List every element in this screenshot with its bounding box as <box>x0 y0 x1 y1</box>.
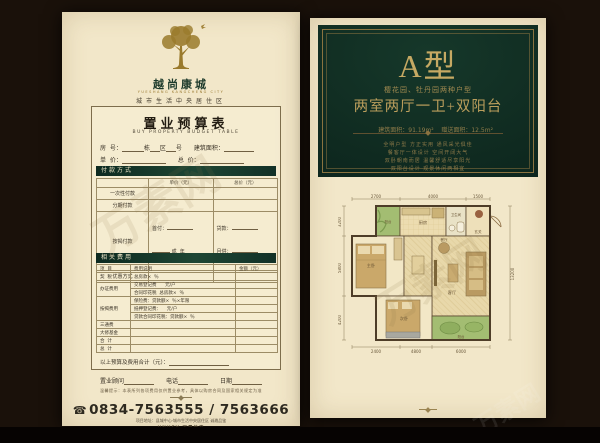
brand-tagline: 城市生活中央居住区 <box>62 96 300 105</box>
svg-text:2700: 2700 <box>371 194 382 199</box>
mortgage-fee-desc1: 保险费：贷款额× ％×年限 <box>131 297 236 305</box>
table-row: 办证费用 交易登记费 元/户 <box>97 281 278 289</box>
budget-form-flyer: 越尚康城 YUESHANG KANGCHENG CITY 城市生活中央居住区 置… <box>62 12 300 426</box>
empty-cell <box>97 179 149 188</box>
table-row: 总 计 <box>97 345 278 353</box>
svg-text:13200: 13200 <box>510 267 515 280</box>
svg-text:3200: 3200 <box>338 216 342 227</box>
total-price-label: 总 价： <box>178 155 200 164</box>
svg-text:阳台: 阳台 <box>385 219 392 224</box>
wardrobe <box>394 238 402 260</box>
green-header-block: A型 樱花园、牡丹园两种户型 两室两厅一卫+双阳台 建筑面积：91.19m² 赠… <box>318 25 538 177</box>
blank-field <box>178 379 208 385</box>
marketing-copy: 全明户型 方正实用 通风采光俱佳 餐客厅一体设计 空间开阔大气 双卧朝南而居 温… <box>318 141 538 173</box>
installment-label: 分期付款 <box>97 200 149 212</box>
fees-header-row: 项 目 费用说明 金额（元） <box>97 265 278 273</box>
bottom-black-band <box>0 427 600 443</box>
hotline-number: 0834-7563555 / 7563666 <box>89 402 289 418</box>
unit-price-col: 单价（元） <box>149 179 214 188</box>
payment-header-row: 单价（元） 总价（元） <box>97 179 278 188</box>
phone-label: 电话 <box>166 376 178 385</box>
table-row: 分期付款 <box>97 200 278 212</box>
entry-table <box>475 210 483 218</box>
cert-fee-desc1: 交易登记费 元/户 <box>131 281 236 289</box>
svg-text:客厅: 客厅 <box>448 289 456 296</box>
empty-cell <box>236 337 278 345</box>
form-subtitle: BUY PROPERTY BUDGET TABLE <box>92 130 280 135</box>
budget-form-box: 置业预算表 BUY PROPERTY BUDGET TABLE 房 号： 栋 区… <box>91 106 281 370</box>
date-label: 日期 <box>220 376 232 385</box>
table-row: 合 计 <box>97 337 278 345</box>
room-number-row: 房 号： 栋 区 号 建筑面积： <box>100 143 272 152</box>
table-row: 契 税 总房款× ％ <box>97 273 278 281</box>
phone-icon: ☎ <box>73 404 87 417</box>
brand-latin-name: YUESHANG KANGCHENG CITY <box>62 90 300 94</box>
copy-line: 全明户型 方正实用 通风采光俱佳 <box>318 141 538 149</box>
table-row: 按揭费用 保险费：贷款额× ％×年限 <box>97 297 278 305</box>
svg-text:次卧: 次卧 <box>400 315 408 322</box>
payment-header-label: 付款方式 <box>101 167 133 174</box>
blank-field <box>232 224 258 230</box>
cabinet <box>412 256 424 274</box>
gold-divider <box>353 133 503 134</box>
blank-field <box>167 224 193 230</box>
mortgage-fee-label: 按揭费用 <box>97 297 131 321</box>
mortgage-fee-desc2: 抵押登记费： 元/户 <box>131 305 236 313</box>
empty-cell <box>236 289 278 297</box>
number-label: 号 <box>176 143 182 152</box>
svg-text:5800: 5800 <box>338 262 342 273</box>
svg-text:4000: 4000 <box>428 194 439 199</box>
blank-field <box>169 360 229 366</box>
floor-plan: 2700 4000 1500 3200 5800 4200 13200 2400… <box>338 194 518 354</box>
copy-line: 双阳台设计 观景休闲两相宜 <box>318 165 538 173</box>
empty-cell <box>236 273 278 281</box>
blank-field <box>124 379 154 385</box>
hotline: ☎0834-7563555 / 7563666 <box>62 402 300 418</box>
svg-text:主卧: 主卧 <box>367 262 375 269</box>
deed-tax-desc: 总房款× ％ <box>131 273 236 281</box>
cert-fee-desc2: 合同印花税 总房款× ％ <box>131 289 236 297</box>
repair-fund-label: 大修基金 <box>97 329 131 337</box>
total-price-col: 总价（元） <box>213 179 278 188</box>
svg-text:4800: 4800 <box>411 349 422 354</box>
gardens-subtitle: 樱花园、牡丹园两种户型 <box>318 85 538 95</box>
budget-total-label: 以上预算及费用合计（元）： <box>100 358 169 366</box>
empty-cell <box>131 345 236 353</box>
empty-cell <box>213 188 278 200</box>
blank-field <box>150 146 160 152</box>
unit-type-flyer: A型 樱花园、牡丹园两种户型 两室两厅一卫+双阳台 建筑面积：91.19m² 赠… <box>310 18 546 418</box>
signature-row: 置业顾问 电话 日期 <box>62 376 300 385</box>
coffee-table <box>448 264 458 282</box>
blank-field <box>224 146 254 152</box>
desc-col: 费用说明 <box>131 265 236 273</box>
svg-text:餐厅: 餐厅 <box>440 237 448 242</box>
svg-text:厨房: 厨房 <box>419 219 427 226</box>
address-line: 项目地址：县城中心·城市生活中央居住区 诚邀品鉴 <box>62 418 300 424</box>
fees-header-label: 相关费用 <box>101 254 133 261</box>
fees-section-header: 相关费用 <box>96 253 276 263</box>
brand-tree-logo-icon <box>149 20 213 74</box>
empty-cell <box>236 281 278 289</box>
blank-field <box>166 146 176 152</box>
payment-section-header: 付款方式 <box>96 166 276 176</box>
item-col: 项 目 <box>97 265 131 273</box>
bottom-ornament <box>419 409 437 410</box>
disclaimer-text: 温馨提示：本表所列各项费用仅供置业参考，具体以购房合同及国家相关规定为准 <box>72 388 290 394</box>
empty-cell <box>236 297 278 305</box>
copy-line: 双卧朝南而居 温馨舒适尽享阳光 <box>318 157 538 165</box>
room-no-label: 房 号： <box>100 143 122 152</box>
empty-cell <box>236 345 278 353</box>
deed-tax-label: 契 税 <box>97 273 131 281</box>
area-label: 建筑面积： <box>194 143 224 152</box>
empty-cell <box>149 188 214 200</box>
grand-total-label: 总 计 <box>97 345 131 353</box>
blank-field <box>200 158 244 164</box>
fees-table: 项 目 费用说明 金额（元） 契 税 总房款× ％ 办证费用 交易登记费 元/户… <box>96 264 278 353</box>
svg-text:阳台: 阳台 <box>458 334 465 339</box>
downpay-label: 首付： <box>152 226 167 232</box>
loan-label: 贷款： <box>217 226 232 232</box>
empty-cell <box>131 321 236 329</box>
svg-text:4200: 4200 <box>338 314 342 325</box>
svg-text:6000: 6000 <box>456 349 467 354</box>
svg-text:玄关: 玄关 <box>474 229 482 234</box>
table-row: 一次性付款 <box>97 188 278 200</box>
amount-col: 金额（元） <box>236 265 278 273</box>
svg-text:卫生间: 卫生间 <box>451 212 462 217</box>
layout-title: 两室两厅一卫+双阳台 <box>318 95 538 116</box>
blank-field <box>122 158 166 164</box>
empty-cell <box>236 305 278 313</box>
table-row: 三通费 <box>97 321 278 329</box>
empty-cell <box>131 329 236 337</box>
copy-line: 餐客厅一体设计 空间开阔大气 <box>318 149 538 157</box>
tv-stand <box>434 260 437 286</box>
svg-text:2400: 2400 <box>371 349 382 354</box>
cert-fee-label: 办证费用 <box>97 281 131 297</box>
price-row: 单 价： 总 价： <box>100 155 272 164</box>
empty-cell <box>236 321 278 329</box>
empty-cell <box>149 200 214 212</box>
design-canvas: 越尚康城 YUESHANG KANGCHENG CITY 城市生活中央居住区 置… <box>0 0 600 443</box>
unit-type-title: A型 <box>318 41 538 87</box>
small-ornament-divider <box>170 397 192 398</box>
svg-text:1500: 1500 <box>473 194 484 199</box>
unit-price-label: 单 价： <box>100 155 122 164</box>
dining-table <box>439 243 450 254</box>
subtotal-label: 合 计 <box>97 337 131 345</box>
consultant-label: 置业顾问 <box>100 376 124 385</box>
empty-cell <box>131 337 236 345</box>
empty-cell <box>213 200 278 212</box>
blank-field <box>122 146 144 152</box>
utility-fee-label: 三通费 <box>97 321 131 329</box>
mortgage-fee-desc3: 贷款合同印花税：贷款额× ％ <box>131 313 236 321</box>
empty-cell <box>236 329 278 337</box>
blank-field <box>232 379 262 385</box>
empty-cell <box>236 313 278 321</box>
table-row: 大修基金 <box>97 329 278 337</box>
budget-total-row: 以上预算及费用合计（元）： <box>100 358 272 366</box>
once-payment-label: 一次性付款 <box>97 188 149 200</box>
